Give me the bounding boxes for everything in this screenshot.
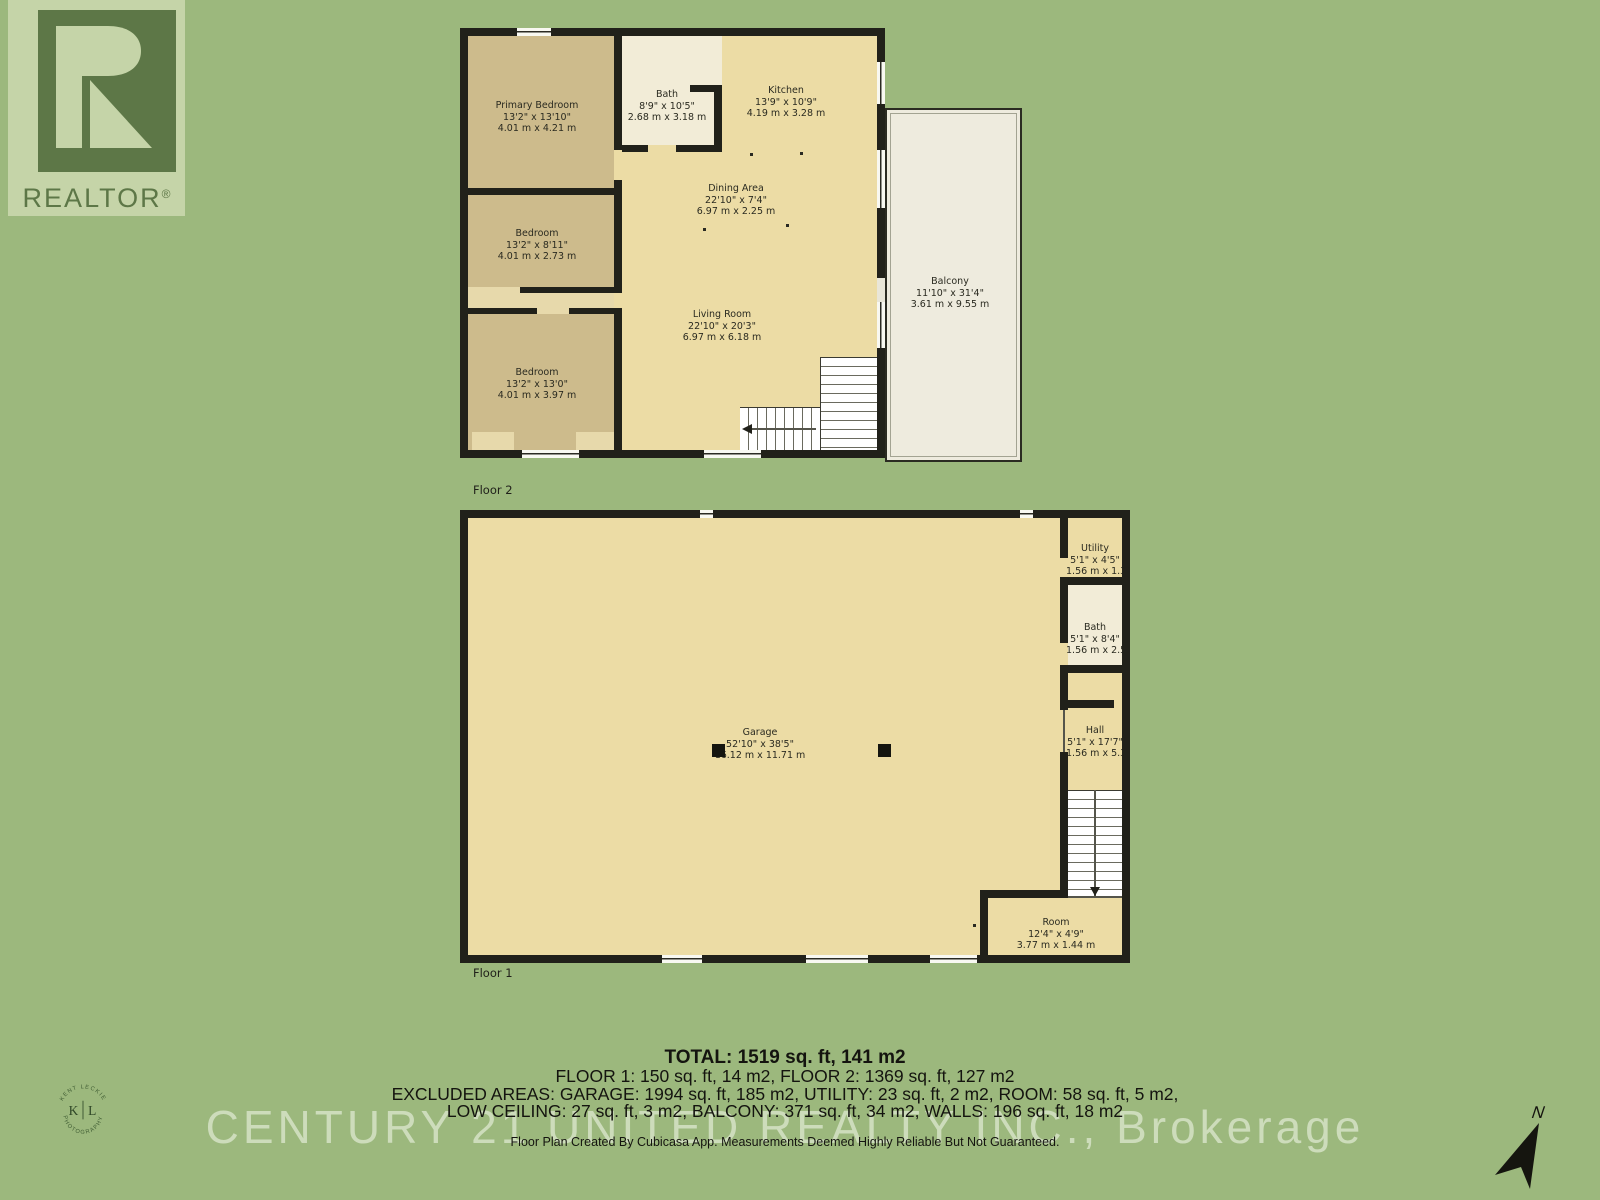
room-dim-ft: 22'10" x 20'3" — [683, 321, 762, 333]
window — [1020, 510, 1033, 518]
window — [700, 510, 713, 518]
wall-segment — [468, 188, 622, 195]
room-dim-m: 1.56 m x 1.36 m — [1066, 566, 1124, 578]
room-dim-m: 4.01 m x 2.73 m — [498, 251, 577, 263]
plan-marker-dot — [750, 153, 753, 156]
room-dim-ft: 13'2" x 13'0" — [498, 379, 577, 391]
window — [517, 28, 551, 36]
room-dim-ft: 13'2" x 8'11" — [498, 240, 577, 252]
north-arrow-icon — [1492, 1120, 1552, 1190]
plan-marker-dot — [703, 228, 706, 231]
garage-post — [712, 744, 725, 757]
wall-segment — [460, 28, 468, 458]
room-dim-ft: 5'1" x 17'7" — [1066, 737, 1124, 749]
wall-segment — [614, 314, 622, 450]
stair-center-line — [1094, 790, 1096, 897]
room-label-utility: Utility 5'1" x 4'5" 1.56 m x 1.36 m — [1066, 543, 1124, 578]
stair-direction-arrow-icon — [742, 424, 752, 434]
room-label-room: Room 12'4" x 4'9" 3.77 m x 1.44 m — [1017, 917, 1096, 952]
floor1-label: Floor 1 — [473, 966, 513, 980]
door-opening — [648, 145, 676, 152]
window — [877, 150, 885, 208]
room-dim-m: 1.56 m x 5.36 m — [1066, 748, 1124, 760]
room-dim-m: 4.01 m x 3.97 m — [498, 390, 577, 402]
room-name: Kitchen — [747, 85, 826, 97]
room-dim-ft: 8'9" x 10'5" — [628, 101, 707, 113]
room-dim-m: 6.97 m x 2.25 m — [697, 206, 776, 218]
garage-post — [878, 744, 891, 757]
window — [877, 62, 885, 104]
wall-segment — [690, 85, 722, 92]
room-label-bath-floor2: Bath 8'9" x 10'5" 2.68 m x 3.18 m — [628, 89, 707, 124]
realtor-wordmark: REALTOR® — [8, 179, 185, 213]
wall-segment — [614, 36, 622, 150]
stair-down-arrow-icon — [1090, 887, 1100, 896]
room-name: Bedroom — [498, 228, 577, 240]
room-name: Garage — [715, 727, 806, 739]
wall-segment — [980, 890, 1068, 898]
room-name: Bedroom — [498, 367, 577, 379]
room-dim-ft: 11'10" x 31'4" — [911, 288, 990, 300]
room-dim-ft: 52'10" x 38'5" — [715, 739, 806, 751]
window — [704, 450, 761, 458]
room-dim-m: 6.97 m x 6.18 m — [683, 332, 762, 344]
room-dim-m: 1.56 m x 2.53 m — [1066, 645, 1124, 657]
wall-segment — [520, 287, 622, 293]
closet-fill — [576, 432, 614, 450]
room-dim-ft: 22'10" x 7'4" — [697, 195, 776, 207]
floor-plan-page: { "colors": { "background": "#9cb87d", "… — [0, 0, 1600, 1200]
realtor-r-icon — [38, 10, 176, 172]
wall-segment — [1060, 752, 1068, 898]
realtor-logo-square — [38, 10, 176, 172]
wall-segment — [1060, 578, 1068, 643]
room-dim-m: 3.61 m x 9.55 m — [911, 299, 990, 311]
realtor-watermark: REALTOR® — [8, 0, 185, 216]
window — [806, 955, 868, 963]
registered-mark-icon: ® — [162, 187, 171, 201]
room-dim-ft: 5'1" x 8'4" — [1066, 634, 1124, 646]
room-label-dining-area: Dining Area 22'10" x 7'4" 6.97 m x 2.25 … — [697, 183, 776, 218]
room-name: Utility — [1066, 543, 1124, 555]
room-dim-ft: 13'2" x 13'10" — [496, 112, 579, 124]
area-summary: TOTAL: 1519 sq. ft, 141 m2 FLOOR 1: 150 … — [0, 1048, 1570, 1121]
room-label-hall: Hall 5'1" x 17'7" 1.56 m x 5.36 m — [1066, 725, 1124, 760]
photographer-logo: KENT LECKIE PHOTOGRAPHY K L — [50, 1076, 116, 1142]
wall-segment — [468, 308, 537, 314]
room-label-kitchen: Kitchen 13'9" x 10'9" 4.19 m x 3.28 m — [747, 85, 826, 120]
room-dim-m: 4.01 m x 4.21 m — [496, 123, 579, 135]
window — [522, 450, 579, 458]
room-name: Hall — [1066, 725, 1124, 737]
realtor-text: REALTOR — [23, 183, 162, 213]
wall-segment — [1060, 518, 1068, 558]
room-label-garage: Garage 52'10" x 38'5" 16.12 m x 11.71 m — [715, 727, 806, 762]
floor2-label: Floor 2 — [473, 483, 513, 497]
wall-segment — [614, 180, 622, 287]
photographer-initial-k: K — [69, 1103, 79, 1118]
room-name: Living Room — [683, 309, 762, 321]
window — [877, 302, 885, 348]
summary-floors: FLOOR 1: 150 sq. ft, 14 m2, FLOOR 2: 136… — [0, 1068, 1570, 1086]
room-label-balcony: Balcony 11'10" x 31'4" 3.61 m x 9.55 m — [911, 276, 990, 311]
photographer-initial-l: L — [88, 1103, 96, 1118]
room-name: Dining Area — [697, 183, 776, 195]
disclaimer-text: Floor Plan Created By Cubicasa App. Meas… — [0, 1135, 1570, 1149]
room-label-bedroom3: Bedroom 13'2" x 13'0" 4.01 m x 3.97 m — [498, 367, 577, 402]
summary-excluded-2: LOW CEILING: 27 sq. ft, 3 m2, BALCONY: 3… — [0, 1103, 1570, 1121]
summary-total: TOTAL: 1519 sq. ft, 141 m2 — [0, 1048, 1570, 1068]
room-name: Balcony — [911, 276, 990, 288]
room-dim-m: 2.68 m x 3.18 m — [628, 112, 707, 124]
closet-fill — [472, 432, 514, 450]
room-label-living-room: Living Room 22'10" x 20'3" 6.97 m x 6.18… — [683, 309, 762, 344]
wall-segment — [1060, 700, 1114, 708]
wall-segment — [1060, 577, 1130, 585]
room-dim-ft: 12'4" x 4'9" — [1017, 929, 1096, 941]
balcony-door-opening — [877, 278, 885, 302]
wall-segment — [460, 955, 1130, 963]
wall-segment — [1060, 665, 1130, 673]
plan-marker-dot — [786, 224, 789, 227]
floor2-stairs-upper-flight — [820, 357, 878, 451]
stair-bottom-line — [1068, 896, 1122, 898]
room-name: Room — [1017, 917, 1096, 929]
window — [930, 955, 977, 963]
plan-marker-dot — [800, 152, 803, 155]
room-dim-m: 3.77 m x 1.44 m — [1017, 940, 1096, 952]
window — [662, 955, 702, 963]
stair-direction-line — [752, 428, 816, 430]
room-dim-m: 16.12 m x 11.71 m — [715, 750, 806, 762]
hall-opening-line — [1063, 710, 1065, 752]
room-dim-ft: 5'1" x 4'5" — [1066, 555, 1124, 567]
plan-marker-dot — [973, 924, 976, 927]
wall-segment — [714, 85, 722, 152]
room-name: Bath — [1066, 622, 1124, 634]
room-dim-ft: 13'9" x 10'9" — [747, 97, 826, 109]
room-label-bedroom2: Bedroom 13'2" x 8'11" 4.01 m x 2.73 m — [498, 228, 577, 263]
room-name: Primary Bedroom — [496, 100, 579, 112]
wall-segment — [460, 510, 468, 963]
room-label-bath-floor1: Bath 5'1" x 8'4" 1.56 m x 2.53 m — [1066, 622, 1124, 657]
photographer-arc-top: KENT LECKIE — [59, 1084, 107, 1102]
room-label-primary-bedroom: Primary Bedroom 13'2" x 13'10" 4.01 m x … — [496, 100, 579, 135]
wall-segment — [980, 890, 988, 955]
room-dim-m: 4.19 m x 3.28 m — [747, 108, 826, 120]
